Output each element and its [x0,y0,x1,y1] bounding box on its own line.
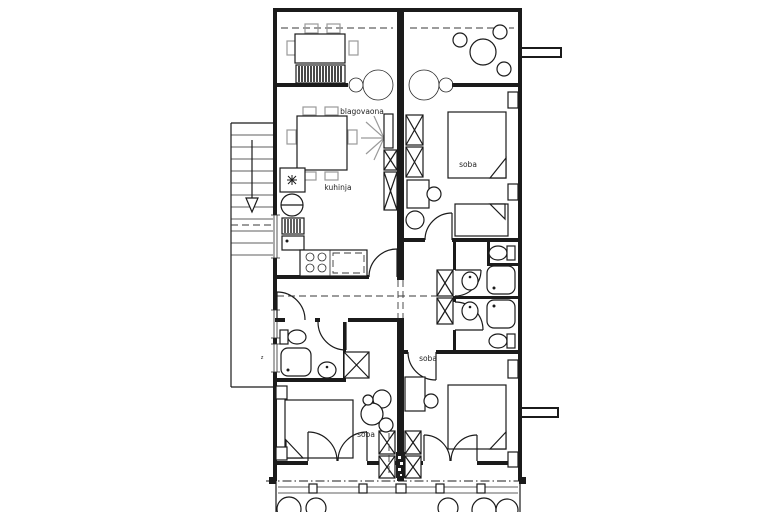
wardrobe-x [406,147,423,177]
label-bedroom-upper-right: soba [459,160,477,169]
toilet [489,246,507,260]
staircase [231,123,275,387]
toilet [288,330,306,344]
shower [281,348,311,376]
terrace-table [295,34,345,63]
toilet-tank [280,330,288,344]
nightstand [276,447,287,460]
washbasin [462,302,478,320]
washbasin [462,272,478,290]
desk-chair [427,187,441,201]
kitchen-counter [300,250,367,276]
label-kitchen: kuhinja [324,183,351,192]
fridge-hatched [282,218,304,234]
desk [405,377,425,411]
desk-chair [424,394,438,408]
wardrobe-x [384,172,397,210]
label-bedroom-lower-right: soba [419,354,437,363]
wardrobe-x [406,115,423,145]
nightstand [276,386,287,399]
shower [487,266,515,294]
nightstand [508,452,518,467]
wardrobe-x [344,352,369,378]
terrace-right [410,25,514,76]
nightstand [508,92,518,108]
wardrobe-x [384,150,397,170]
floor-plan-drawing: blagovaona kuhinja soba soba soba z [0,0,768,512]
stair-direction-arrow [246,140,258,212]
wardrobe-x [405,456,421,478]
washbasin [318,362,336,378]
bathroom-left [280,330,336,378]
wardrobe-x [379,431,395,454]
stool [406,211,424,229]
wardrobe-x [437,298,453,324]
label-bedroom-lower-left: soba [357,430,375,439]
wardrobe-x [405,431,421,454]
terrace-round-table [470,39,496,65]
label-wall-mark: z [261,355,264,361]
nightstand [508,184,518,200]
dining-table [297,116,347,170]
shower [487,300,515,328]
wardrobe-x [379,456,395,478]
desk [407,180,429,208]
label-dining: blagovaona [340,107,384,116]
nightstand [508,360,518,378]
terrace-bench-hatched [296,65,345,83]
toilet [489,334,507,348]
floor-plan-page: blagovaona kuhinja soba soba soba z [0,0,768,512]
plant [361,390,393,432]
terrace-left [281,24,393,83]
wardrobe-x [437,270,453,296]
shaft [396,452,405,478]
